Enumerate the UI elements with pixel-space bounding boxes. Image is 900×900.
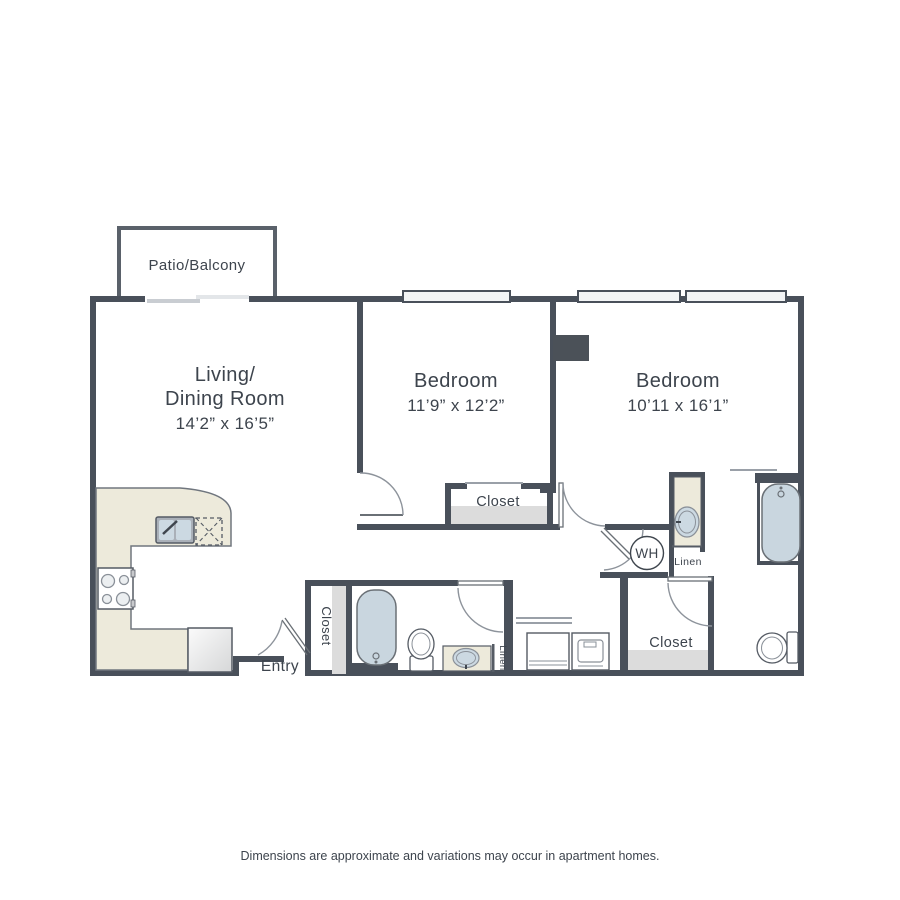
bedroom2-label: Bedroom xyxy=(636,370,720,392)
toilet-1 xyxy=(408,629,434,671)
sliding-door xyxy=(145,294,249,304)
burner xyxy=(102,575,115,588)
sink-vanity-2 xyxy=(674,477,701,546)
linen-bath1-label: Linen xyxy=(497,645,508,670)
wall-right xyxy=(798,296,804,676)
dryer xyxy=(572,633,609,670)
hall-closet-door-arc xyxy=(668,583,712,626)
burner xyxy=(103,595,112,604)
living-room-label-line2: Dining Room xyxy=(165,388,285,410)
window-bedroom2-right xyxy=(686,291,786,302)
kitchen xyxy=(96,488,232,672)
bathroom1-door-arc xyxy=(458,588,503,632)
entry-label: Entry xyxy=(261,658,299,675)
burner xyxy=(120,576,129,585)
closet-entry-label: Closet xyxy=(319,606,334,645)
wall-left xyxy=(90,296,96,676)
disclaimer-text: Dimensions are approximate and variation… xyxy=(0,849,900,863)
bathtub-2 xyxy=(762,484,800,562)
stove xyxy=(98,568,135,609)
window-bedroom2-left xyxy=(578,291,680,302)
patio-label: Patio/Balcony xyxy=(149,257,246,274)
floor-plan-page: Patio/Balcony xyxy=(0,0,900,900)
patio-wall-right xyxy=(273,226,277,298)
bedroom1-door-arc xyxy=(360,473,403,515)
hall-closet-shelf xyxy=(628,650,708,670)
refrigerator xyxy=(188,628,232,672)
entry-door-arc xyxy=(258,621,282,655)
closet-hall-label: Closet xyxy=(649,635,693,651)
closet-bedroom1-label: Closet xyxy=(476,494,520,510)
floor-plan-drawing: Patio/Balcony xyxy=(0,0,900,900)
living-room-dims: 14’2” x 16’5” xyxy=(176,414,275,433)
bedroom2-door-arc xyxy=(563,483,605,526)
washer xyxy=(527,633,569,670)
bedroom1-label: Bedroom xyxy=(414,370,498,392)
bathroom1 xyxy=(357,590,491,671)
wall-bedrooms-divider xyxy=(550,296,556,490)
wall-bath1-top xyxy=(305,580,458,586)
wall-bedroom1-bottom xyxy=(357,524,560,530)
patio-wall-left xyxy=(117,226,121,298)
bedroom2-dims: 10’11 x 16’1” xyxy=(627,396,728,415)
linen-bath2-label: Linen xyxy=(674,556,702,568)
tub1-faucet xyxy=(375,661,378,664)
patio-balcony: Patio/Balcony xyxy=(117,226,277,298)
water-heater-label: WH xyxy=(635,546,658,561)
chimney-block xyxy=(553,335,589,361)
windows xyxy=(403,291,786,302)
living-room-label-line1: Living/ xyxy=(195,364,256,386)
kitchen-sink xyxy=(156,517,194,543)
bathtub-1 xyxy=(357,590,396,665)
toilet-2 xyxy=(757,632,798,663)
tub2-faucet xyxy=(780,487,783,490)
bedroom1-dims: 11’9” x 12’2” xyxy=(407,396,505,415)
laundry xyxy=(527,633,609,670)
wall-bedroom1-left xyxy=(357,296,363,473)
window-bedroom1 xyxy=(403,291,510,302)
patio-wall-top xyxy=(117,226,277,230)
burner xyxy=(117,593,130,606)
sink-vanity-1 xyxy=(443,646,491,671)
